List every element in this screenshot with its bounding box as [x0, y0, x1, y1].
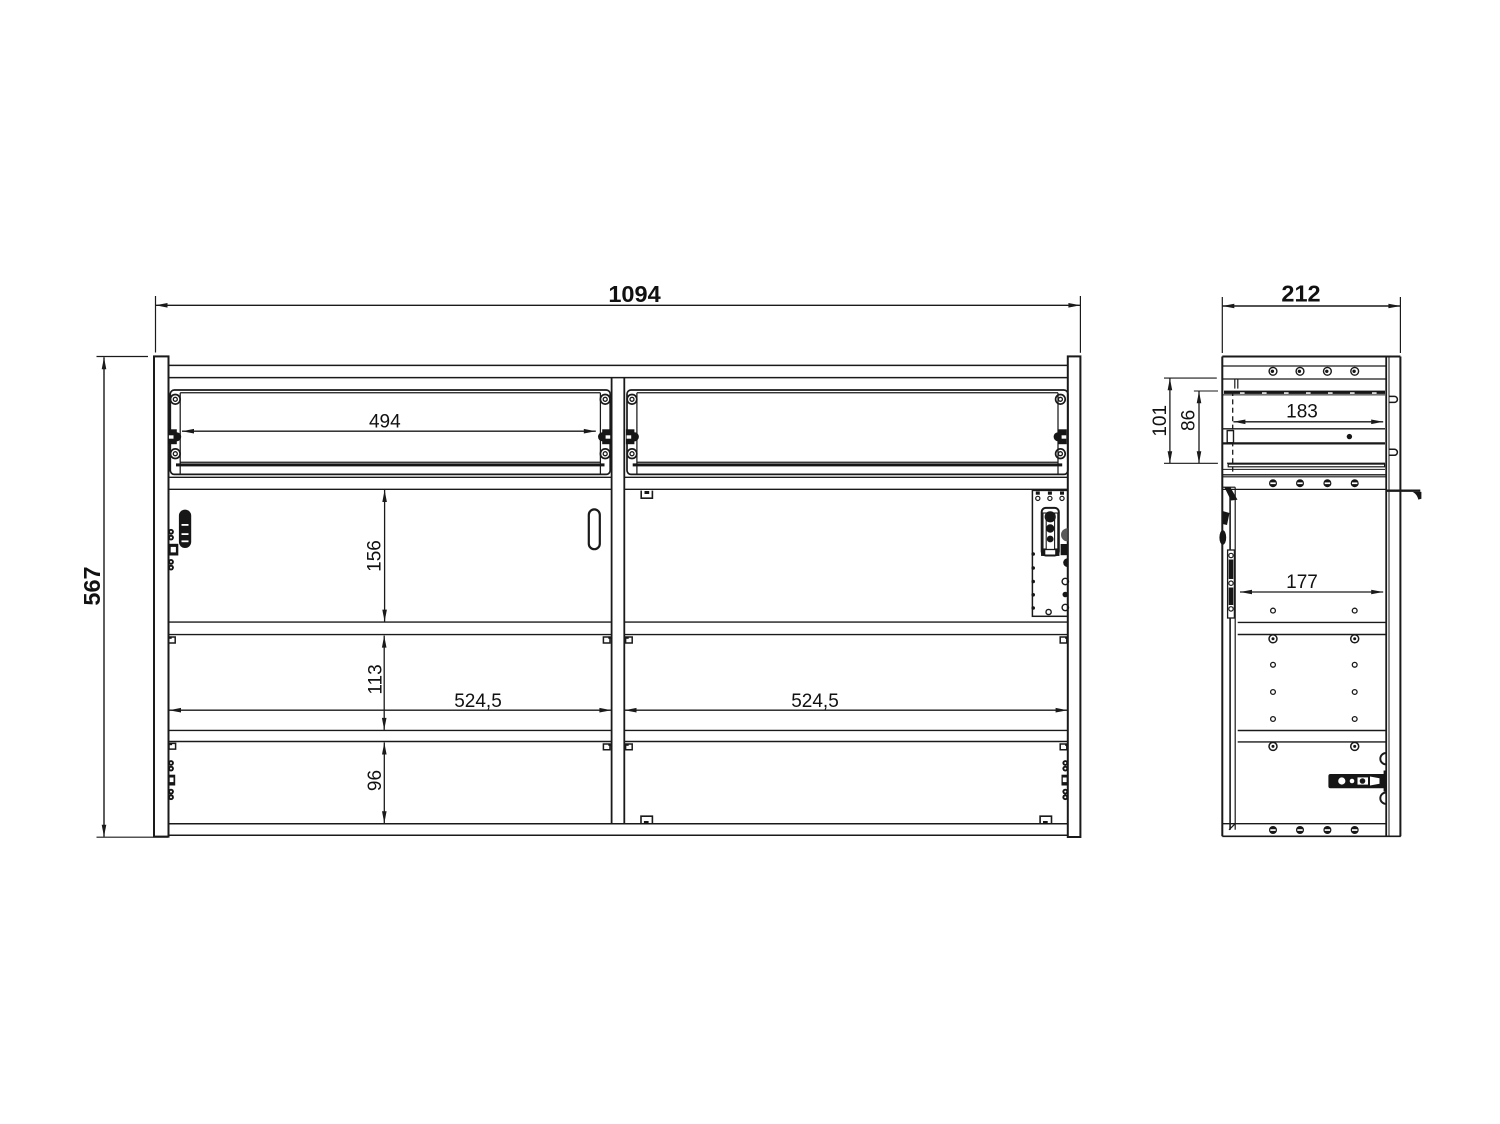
- svg-text:1094: 1094: [608, 281, 660, 307]
- svg-text:524,5: 524,5: [791, 691, 839, 712]
- svg-text:96: 96: [365, 770, 386, 791]
- svg-text:494: 494: [369, 412, 401, 433]
- svg-text:86: 86: [1178, 410, 1199, 431]
- svg-text:177: 177: [1286, 572, 1318, 593]
- svg-text:524,5: 524,5: [454, 691, 502, 712]
- svg-text:212: 212: [1281, 281, 1320, 307]
- svg-text:113: 113: [366, 664, 387, 694]
- svg-text:101: 101: [1150, 405, 1171, 437]
- svg-text:183: 183: [1286, 401, 1318, 422]
- svg-text:156: 156: [365, 540, 386, 572]
- svg-text:567: 567: [79, 566, 105, 605]
